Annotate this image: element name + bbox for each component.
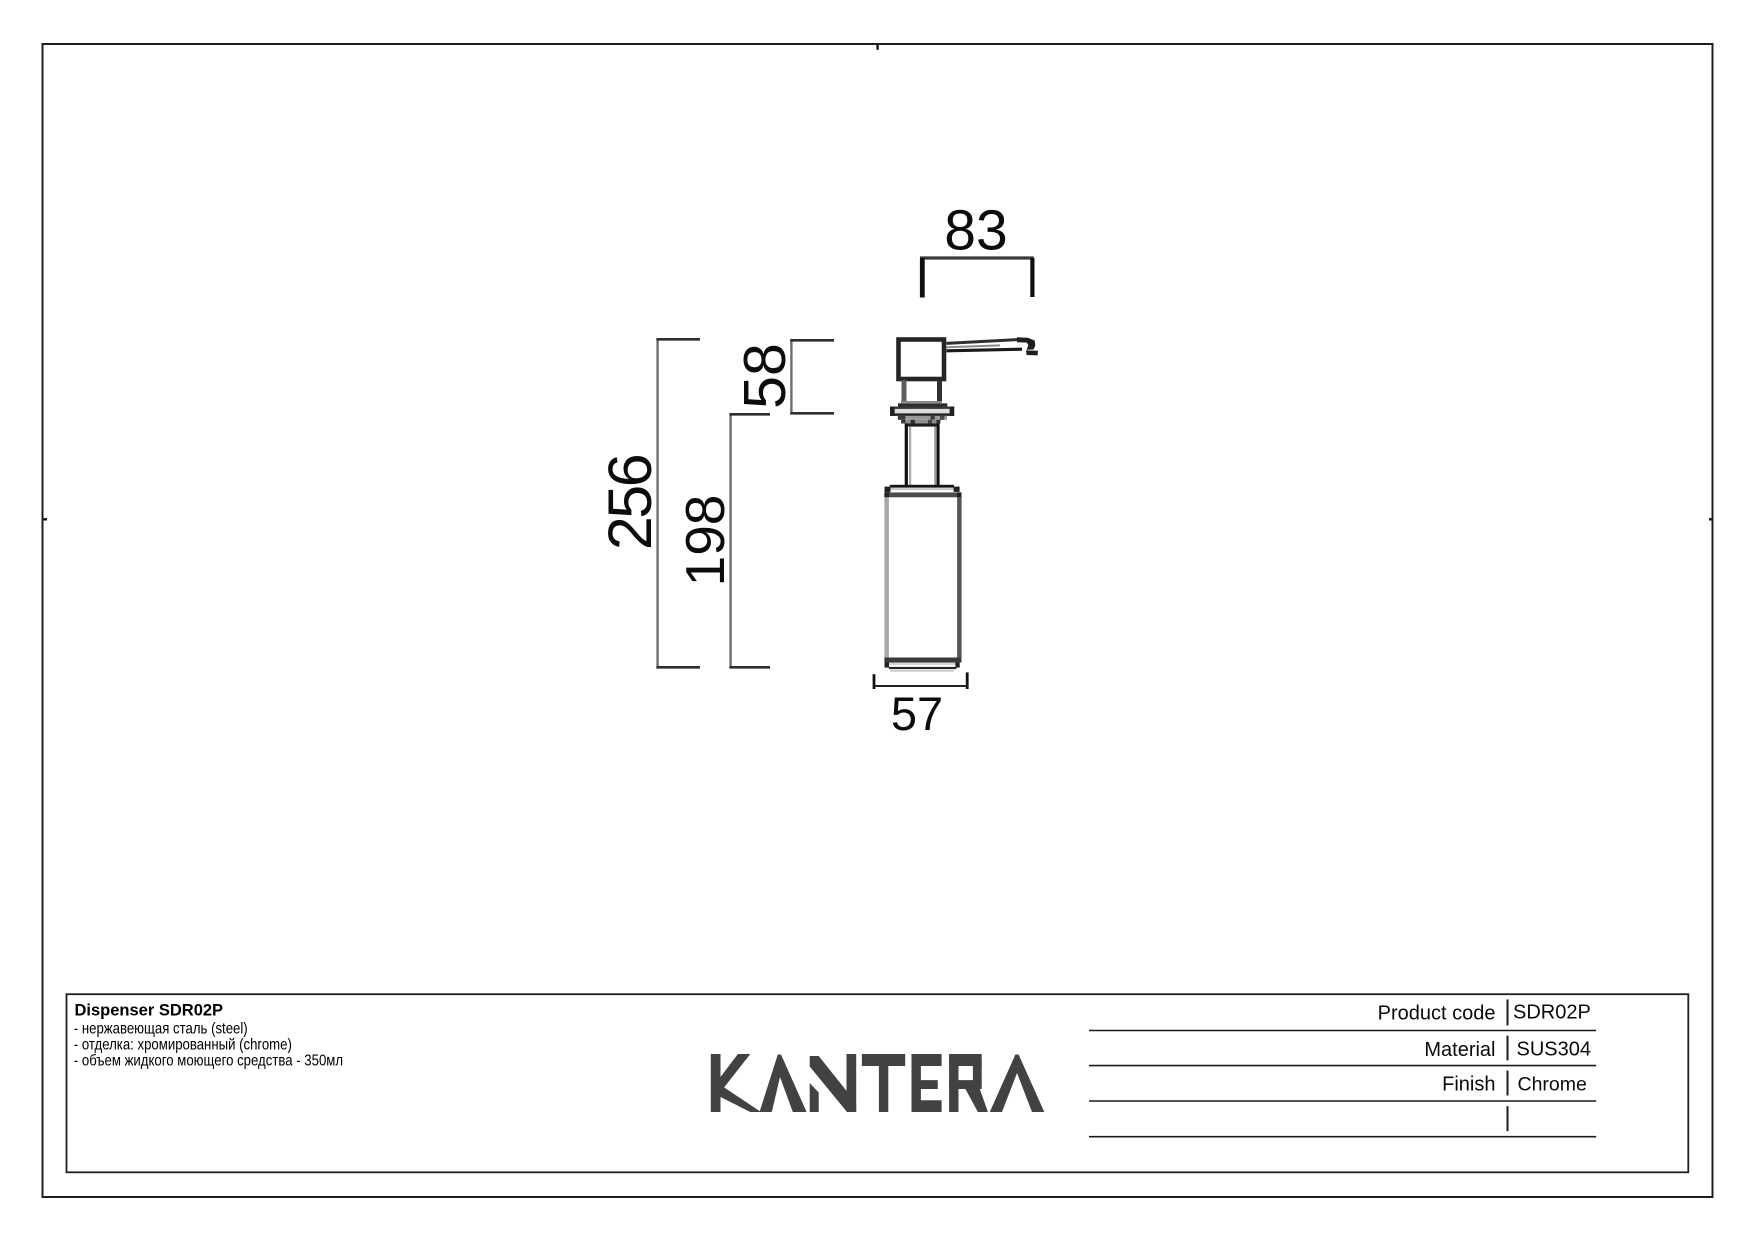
svg-text:Product code: Product code — [1378, 1003, 1496, 1025]
svg-text:198: 198 — [674, 495, 736, 587]
svg-text:Dispenser SDR02P: Dispenser SDR02P — [75, 1001, 224, 1019]
svg-text:Material: Material — [1424, 1039, 1495, 1061]
svg-text:58: 58 — [732, 343, 798, 409]
svg-text:- нержавеющая сталь (steel): - нержавеющая сталь (steel) — [74, 1020, 248, 1037]
svg-text:SUS304: SUS304 — [1517, 1039, 1592, 1061]
svg-text:Chrome: Chrome — [1518, 1073, 1587, 1095]
svg-text:Finish: Finish — [1442, 1073, 1495, 1095]
svg-text:- отделка: хромированный (chro: - отделка: хромированный (chrome) — [74, 1036, 292, 1053]
svg-text:- объем жидкого моющего средст: - объем жидкого моющего средства - 350мл — [74, 1052, 343, 1069]
svg-text:SDR02P: SDR02P — [1513, 1002, 1591, 1024]
svg-text:57: 57 — [891, 687, 943, 740]
svg-text:83: 83 — [944, 199, 1007, 263]
svg-text:256: 256 — [596, 455, 664, 550]
